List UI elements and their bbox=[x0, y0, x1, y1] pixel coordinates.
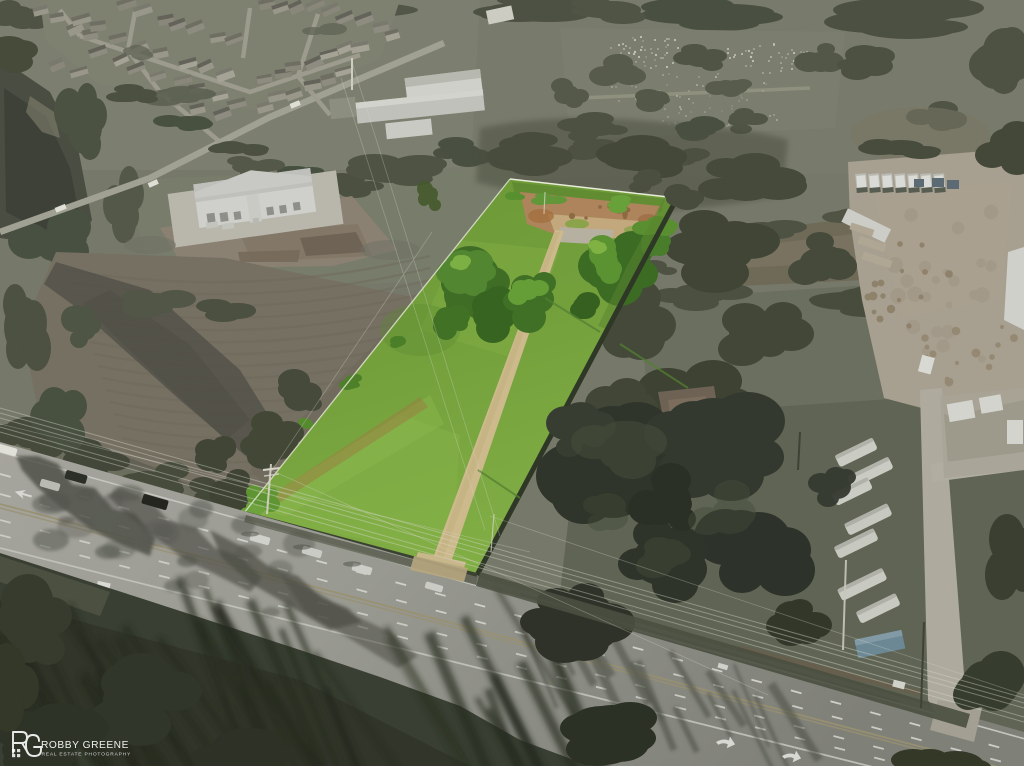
svg-text:REAL ESTATE PHOTOGRAPHY: REAL ESTATE PHOTOGRAPHY bbox=[42, 752, 132, 758]
svg-text:ROBBY GREENE: ROBBY GREENE bbox=[41, 740, 129, 751]
